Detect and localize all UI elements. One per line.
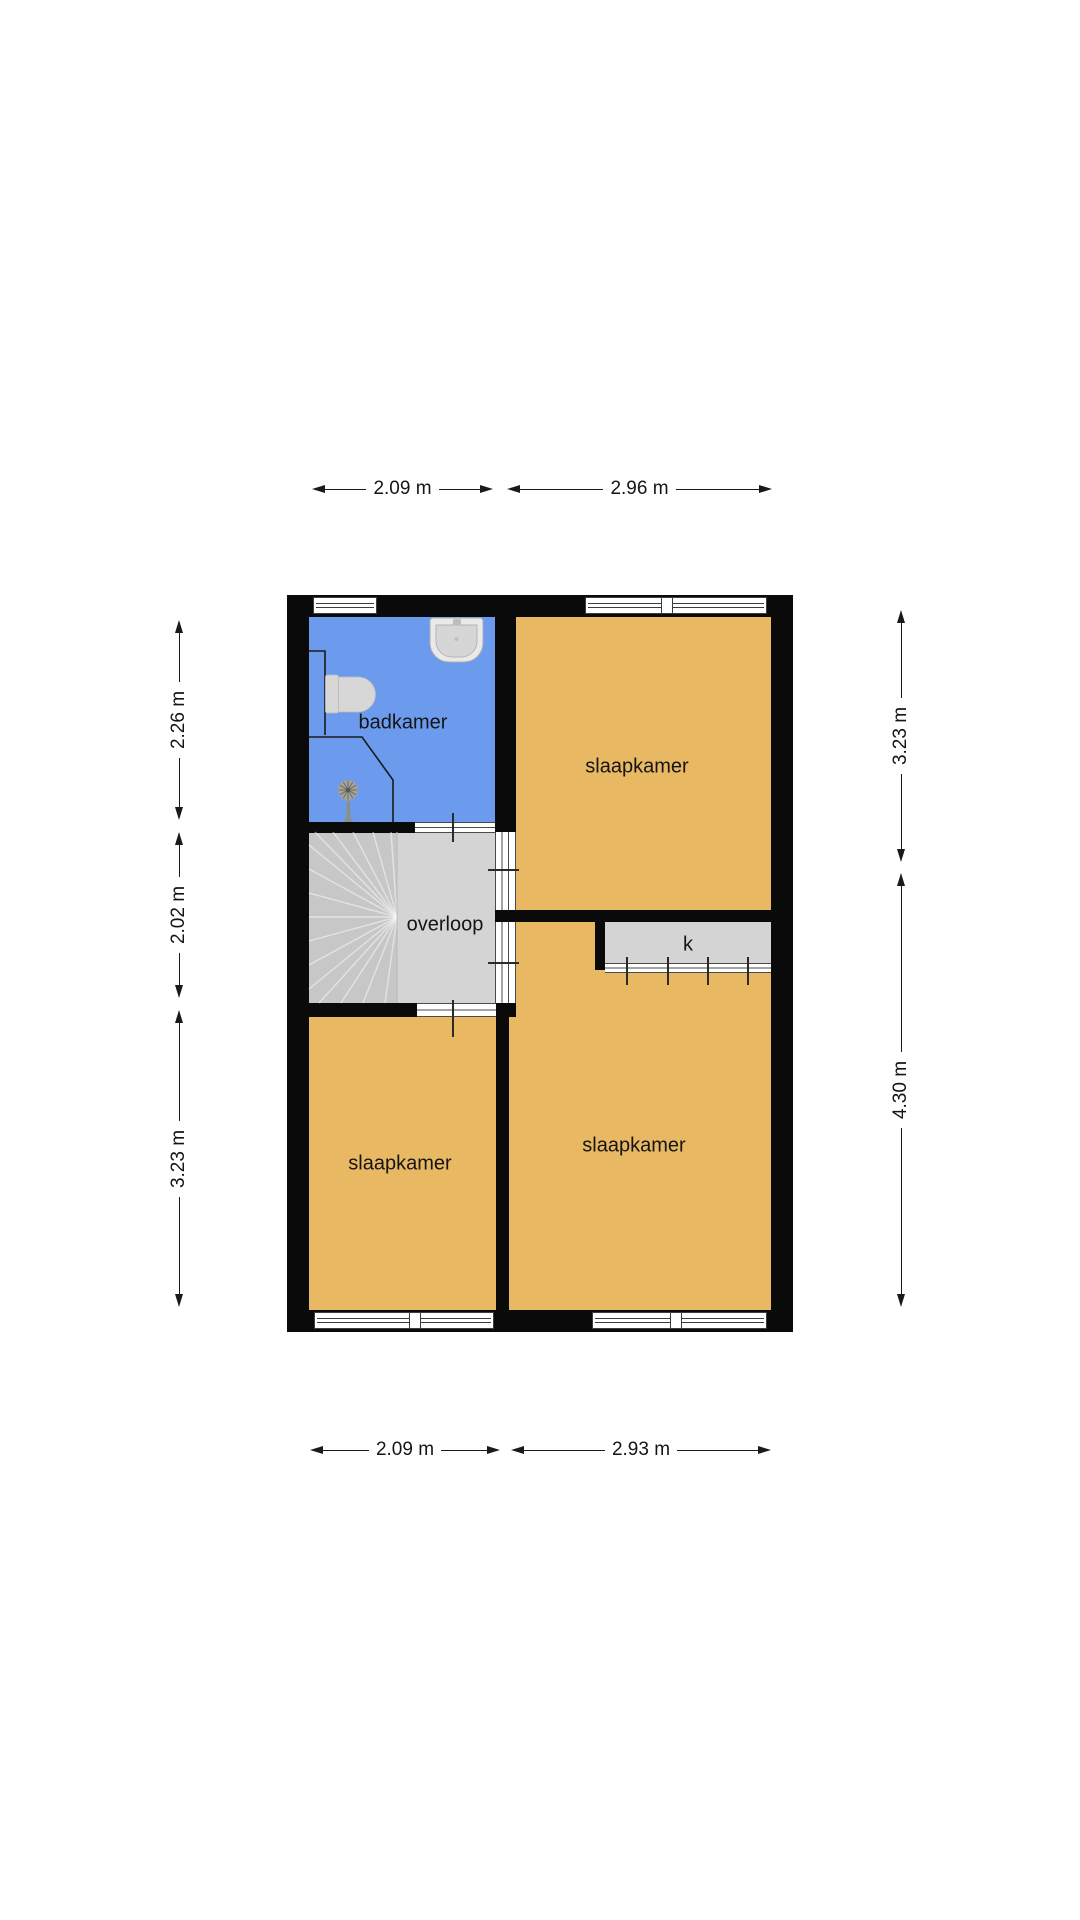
dimension-value: 2.93 m (605, 1439, 677, 1461)
dimension-left-2: 2.02 m (168, 832, 190, 998)
window-bedroom-bottom-left (314, 1312, 494, 1329)
arrowhead-down (175, 1294, 183, 1307)
arrowhead-down (897, 1294, 905, 1307)
arrowhead-right (487, 1446, 500, 1454)
dimension-right-2: 4.30 m (890, 873, 912, 1307)
arrowhead-up (175, 832, 183, 845)
wall-bathroom-bottom (309, 822, 415, 833)
arrowhead-down (897, 849, 905, 862)
dimension-left-3: 3.23 m (168, 1010, 190, 1307)
arrowhead-left (310, 1446, 323, 1454)
label-slaapkamer-bottom-right: slaapkamer (582, 1135, 685, 1158)
dimension-value: 2.26 m (168, 682, 190, 758)
dimension-right-1: 3.23 m (890, 610, 912, 862)
door-tick (488, 962, 519, 964)
dimension-value: 4.30 m (890, 1052, 912, 1128)
door-slaapkamer-top (495, 832, 516, 910)
dimension-top-2: 2.96 m (507, 479, 772, 499)
arrowhead-down (175, 985, 183, 998)
label-overloop: overloop (407, 914, 484, 937)
door-slaapkamer-bottom-left (417, 1003, 496, 1017)
window-bedroom-top (585, 597, 767, 614)
dimension-bottom-1: 2.09 m (310, 1440, 500, 1460)
dimension-value: 2.09 m (366, 478, 438, 500)
window-mullion (409, 1313, 421, 1328)
room-slaapkamer-bottom-right (508, 922, 771, 1310)
door-tick (452, 813, 454, 842)
arrowhead-left (511, 1446, 524, 1454)
dimension-value: 2.09 m (369, 1439, 441, 1461)
dimension-left-1: 2.26 m (168, 620, 190, 820)
wall-bedroom-divider (496, 1017, 509, 1310)
dimension-bottom-2: 2.93 m (511, 1440, 771, 1460)
arrowhead-left (312, 485, 325, 493)
arrowhead-up (897, 610, 905, 623)
label-slaapkamer-bottom-left: slaapkamer (348, 1153, 451, 1176)
closet-tick (747, 957, 749, 985)
wall-bedroom-top-bottom (495, 910, 793, 922)
door-tick (488, 869, 519, 871)
label-slaapkamer-top: slaapkamer (585, 756, 688, 779)
arrowhead-left (507, 485, 520, 493)
arrowhead-right (480, 485, 493, 493)
dimension-value: 3.23 m (168, 1121, 190, 1197)
dimension-value: 3.23 m (890, 698, 912, 774)
window-mullion (661, 598, 673, 613)
arrowhead-down (175, 807, 183, 820)
door-badkamer (415, 822, 495, 833)
wall-spine-upper (495, 617, 516, 832)
dimension-value: 2.02 m (168, 877, 190, 953)
window-bathroom-top (313, 597, 377, 614)
closet-tick (667, 957, 669, 985)
label-badkamer: badkamer (359, 712, 448, 735)
arrowhead-right (758, 1446, 771, 1454)
arrowhead-up (175, 1010, 183, 1023)
dimension-top-1: 2.09 m (312, 479, 493, 499)
window-mullion (670, 1313, 682, 1328)
closet-tick (626, 957, 628, 985)
door-tick (452, 1000, 454, 1037)
arrowhead-right (759, 485, 772, 493)
label-kast: k (683, 934, 693, 957)
wall-overloop-bottom (309, 1003, 417, 1017)
floorplan: badkamer slaapkamer overloop k slaapkame… (287, 595, 793, 1332)
wall-closet-left (595, 915, 605, 970)
stairs-area (309, 832, 397, 1003)
arrowhead-up (897, 873, 905, 886)
window-bedroom-bottom-right (592, 1312, 767, 1329)
closet-tick (707, 957, 709, 985)
dimension-value: 2.96 m (603, 478, 675, 500)
wall-spine-block (495, 1003, 516, 1017)
arrowhead-up (175, 620, 183, 633)
